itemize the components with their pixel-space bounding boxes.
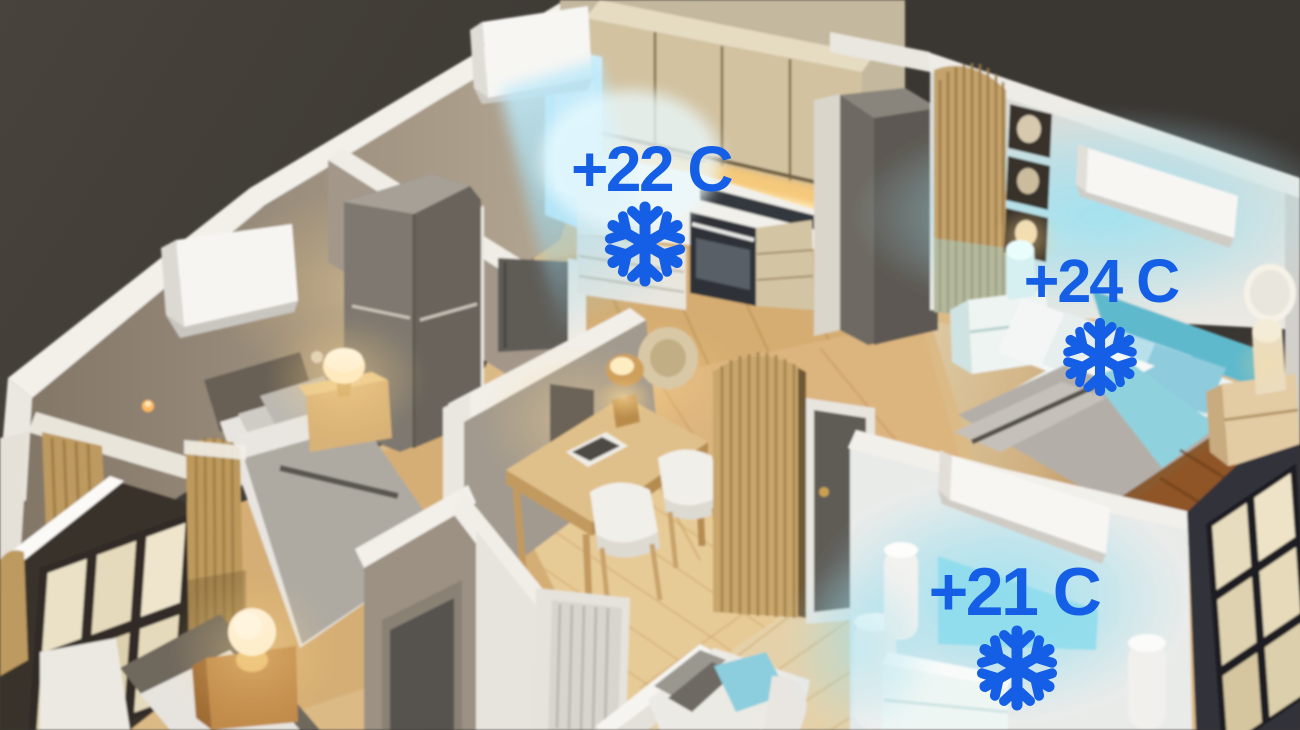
svg-text:+22 C: +22 C <box>571 133 732 205</box>
svg-text:+24 C: +24 C <box>1024 247 1179 315</box>
svg-text:+21 C: +21 C <box>929 554 1101 630</box>
